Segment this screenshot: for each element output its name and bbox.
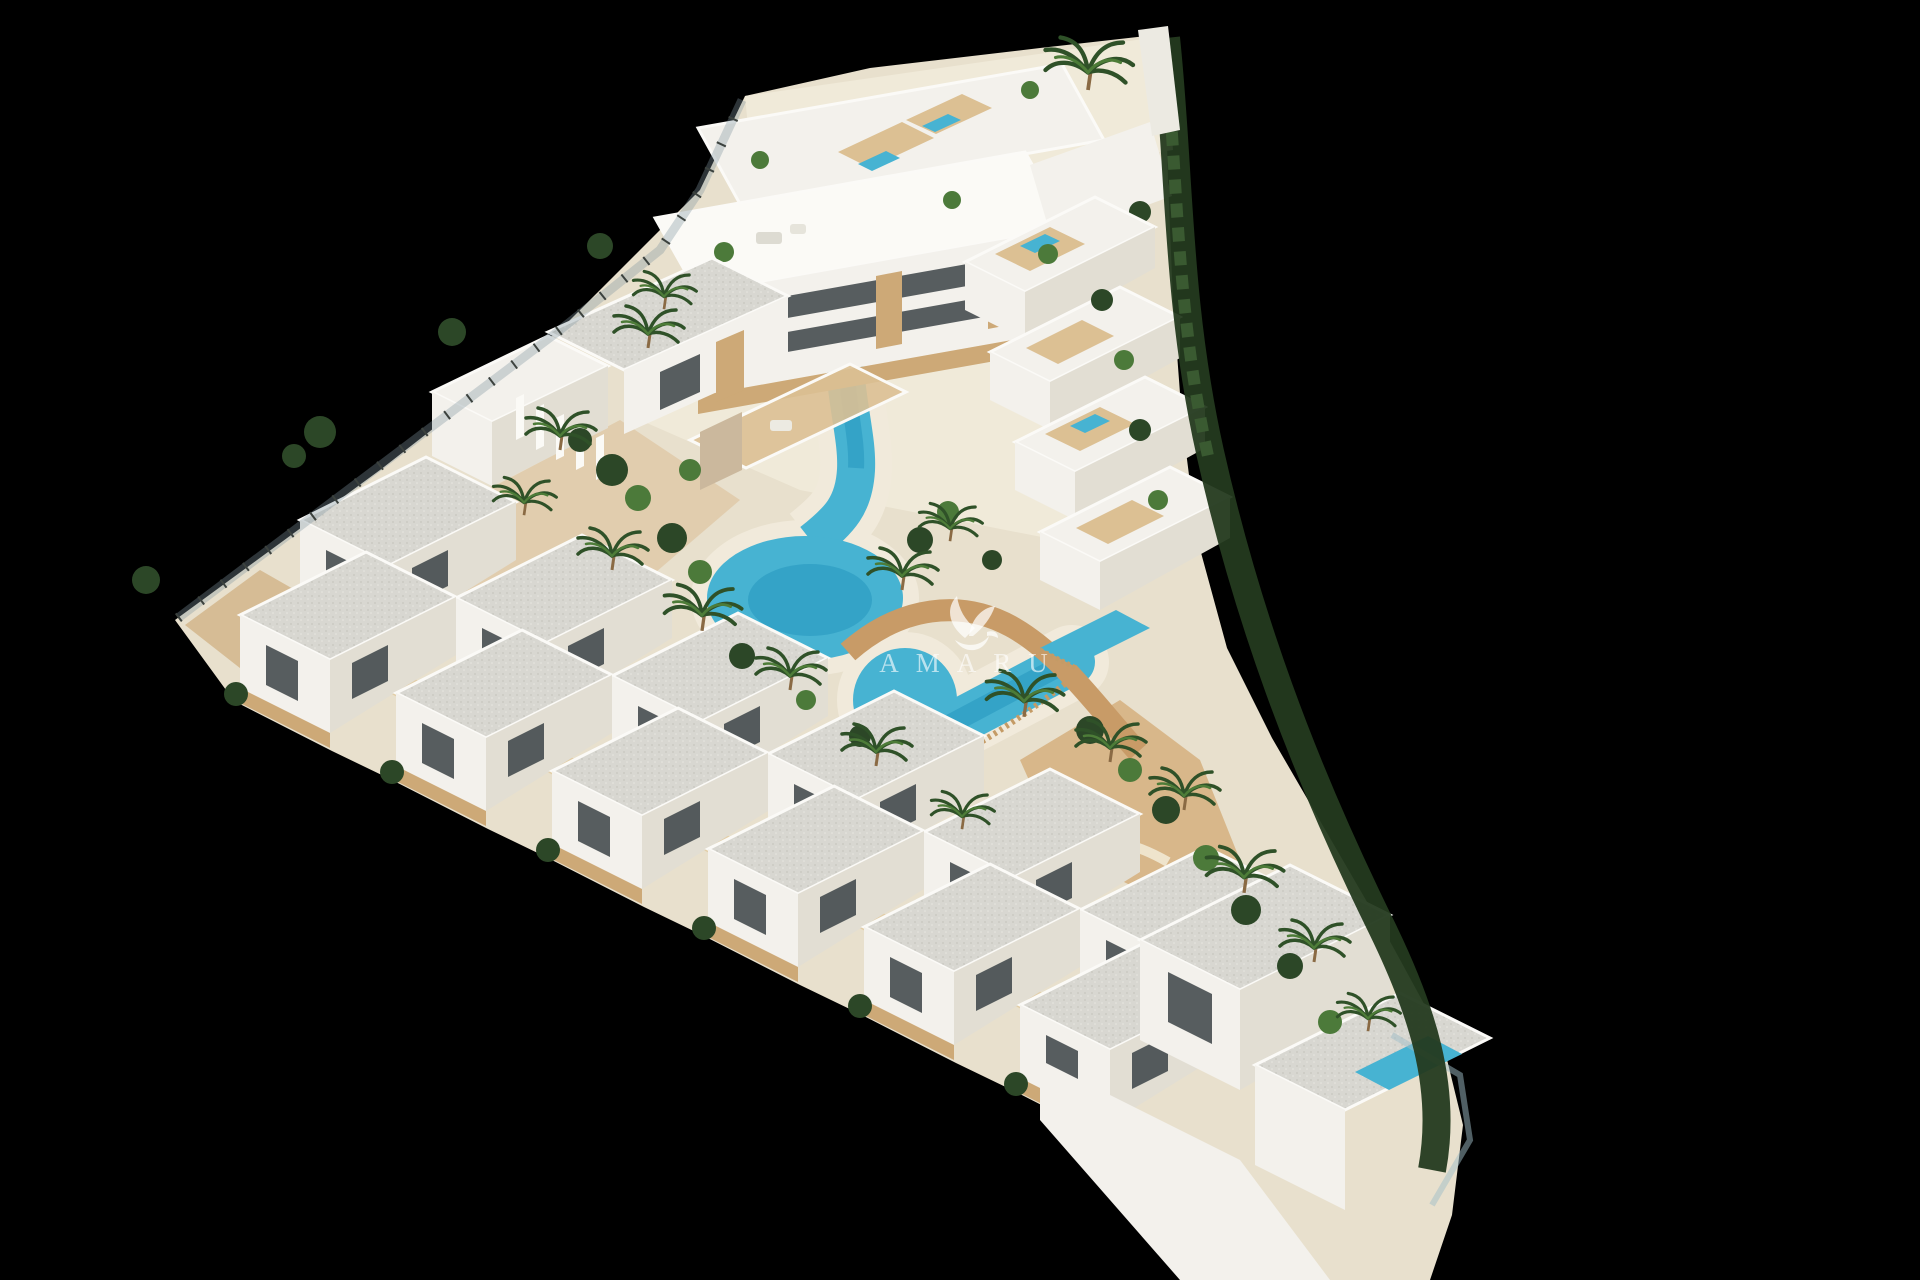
render-canvas: AMARU (0, 0, 1920, 1280)
terrace-sofa (756, 232, 782, 244)
site-render: AMARU (0, 0, 1920, 1280)
terrace-chair (790, 224, 806, 234)
terrace-planter (943, 191, 961, 209)
roof-planter (1021, 81, 1039, 99)
wood-slat-panel (876, 271, 902, 349)
cluster-door (716, 330, 744, 402)
brand-text: AMARU (879, 648, 1065, 678)
roof-planter (751, 151, 769, 169)
terrace-lounge (770, 420, 792, 431)
